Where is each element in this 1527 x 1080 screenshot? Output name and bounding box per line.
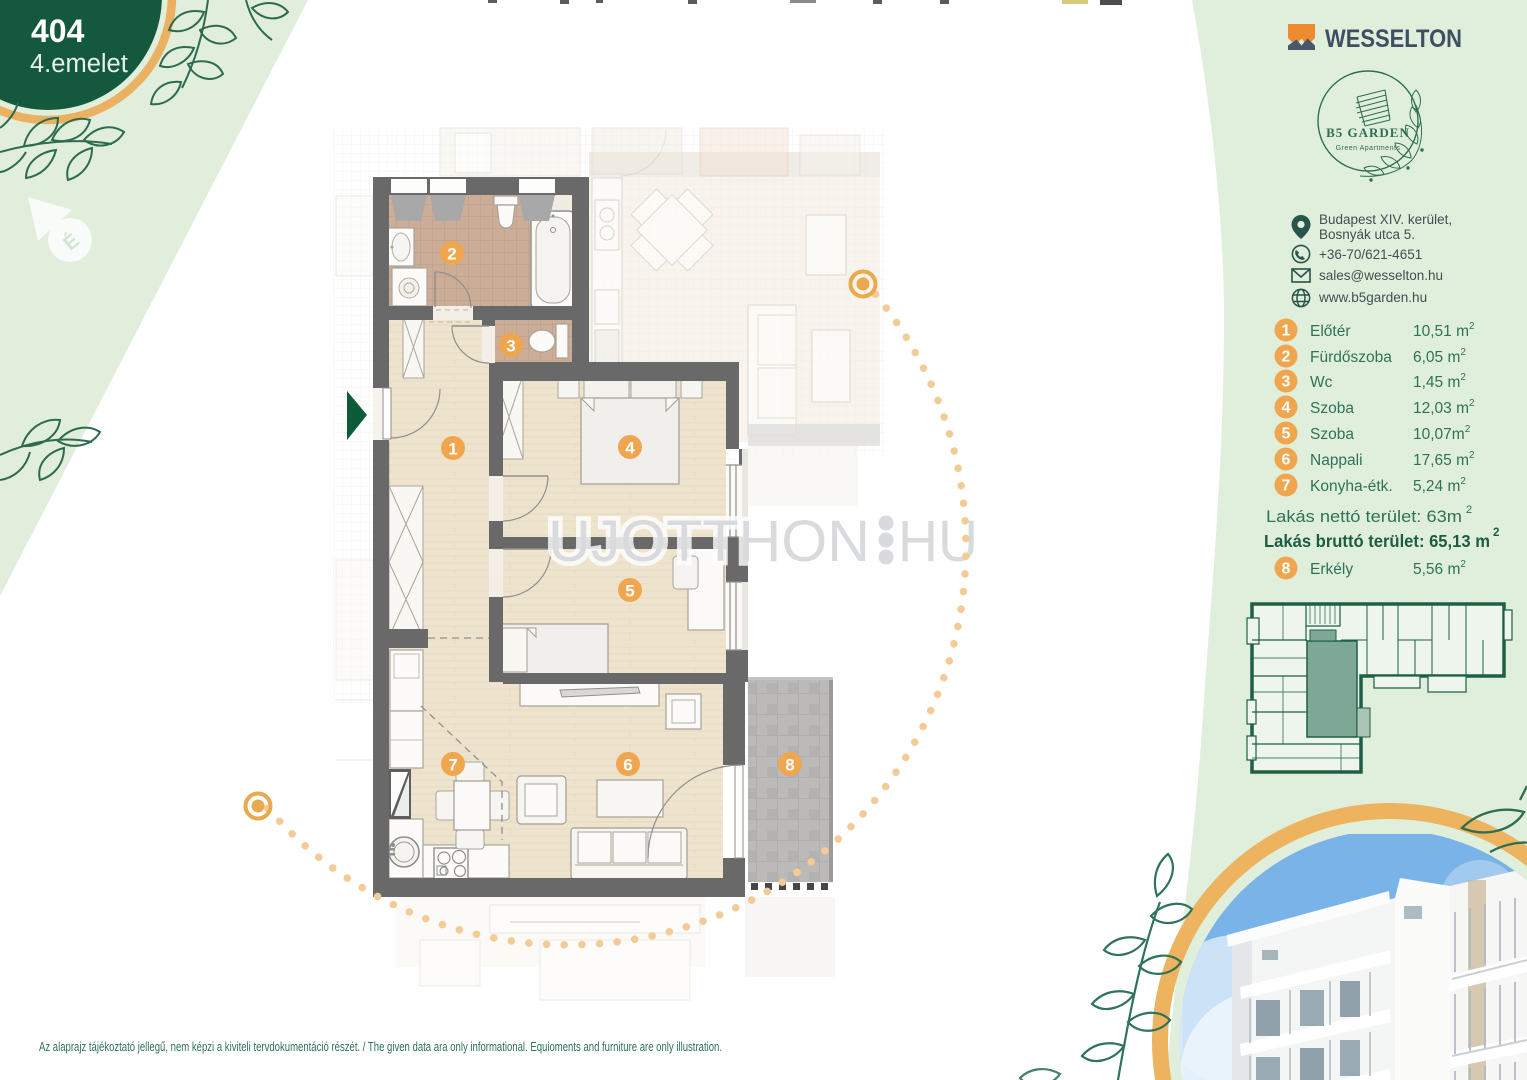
svg-text:Erkély: Erkély — [1310, 561, 1353, 578]
svg-text:2: 2 — [1493, 527, 1499, 539]
svg-text:3: 3 — [506, 337, 515, 356]
svg-text:10,07m2: 10,07m2 — [1413, 424, 1471, 443]
svg-text:2: 2 — [447, 245, 456, 264]
svg-text:Szoba: Szoba — [1310, 426, 1354, 443]
svg-text:6: 6 — [623, 756, 632, 775]
svg-text:7: 7 — [1282, 478, 1291, 495]
svg-text:Szoba: Szoba — [1310, 400, 1354, 417]
svg-text:12,03 m2: 12,03 m2 — [1413, 398, 1475, 417]
svg-text:UJOTTHON: UJOTTHON — [548, 509, 870, 574]
svg-text:Az alaprajz tájékoztató jelleg: Az alaprajz tájékoztató jellegű, nem kép… — [39, 1040, 722, 1054]
svg-text:8: 8 — [785, 756, 794, 775]
svg-text:WESSELTON: WESSELTON — [1325, 25, 1462, 53]
svg-text:6,05 m2: 6,05 m2 — [1413, 347, 1466, 366]
svg-text:2: 2 — [1282, 349, 1291, 366]
svg-text:4.emelet: 4.emelet — [30, 50, 128, 78]
svg-text:7: 7 — [448, 756, 457, 775]
svg-text:2: 2 — [1466, 504, 1472, 516]
svg-text:1,45 m2: 1,45 m2 — [1413, 372, 1466, 391]
svg-text:Lakás nettó terület: 63m: Lakás nettó terület: 63m — [1266, 507, 1462, 526]
svg-text:10,51 m2: 10,51 m2 — [1413, 321, 1475, 340]
svg-text:1: 1 — [1282, 323, 1291, 340]
svg-text:www.b5garden.hu: www.b5garden.hu — [1318, 290, 1427, 305]
svg-text:+36-70/621-4651: +36-70/621-4651 — [1319, 247, 1422, 262]
svg-text:1: 1 — [448, 440, 457, 459]
svg-text:Konyha-étk.: Konyha-étk. — [1310, 478, 1393, 495]
svg-text:3: 3 — [1282, 374, 1291, 391]
svg-text:5: 5 — [625, 582, 634, 601]
svg-text:Fürdőszoba: Fürdőszoba — [1310, 349, 1392, 366]
svg-text:Előtér: Előtér — [1310, 323, 1351, 340]
svg-text:5: 5 — [1282, 426, 1291, 443]
svg-text:4: 4 — [625, 439, 635, 458]
svg-text:6: 6 — [1282, 452, 1291, 469]
svg-text:5,56 m2: 5,56 m2 — [1413, 559, 1466, 578]
svg-text:Nappali: Nappali — [1310, 452, 1363, 469]
svg-text:5,24 m2: 5,24 m2 — [1413, 476, 1466, 495]
svg-text:17,65 m2: 17,65 m2 — [1413, 450, 1475, 469]
svg-text:4: 4 — [1282, 400, 1291, 417]
svg-text:Green Apartments: Green Apartments — [1336, 145, 1401, 152]
svg-text:Lakás bruttó terület: 65,13 m: Lakás bruttó terület: 65,13 m — [1264, 531, 1490, 551]
svg-text:Budapest XIV. kerület,: Budapest XIV. kerület, — [1319, 212, 1452, 227]
svg-text:Bosnyák utca 5.: Bosnyák utca 5. — [1319, 227, 1415, 242]
svg-text:Wc: Wc — [1310, 374, 1333, 391]
svg-text:8: 8 — [1282, 561, 1291, 578]
svg-text:B5 GARDEN: B5 GARDEN — [1326, 125, 1410, 140]
svg-text:404: 404 — [31, 13, 85, 49]
svg-text:sales@wesselton.hu: sales@wesselton.hu — [1319, 268, 1443, 283]
